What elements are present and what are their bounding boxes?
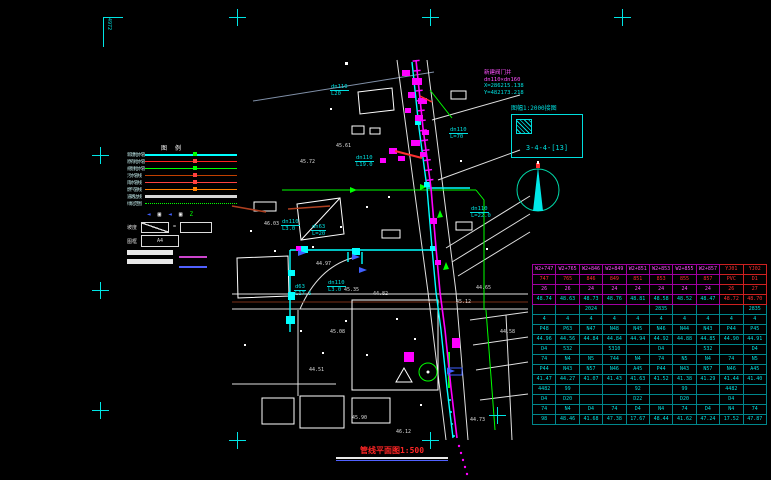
table-cell: 4	[649, 315, 672, 325]
legend-frame-row: 图框 A4	[127, 236, 245, 246]
table-cell	[649, 395, 672, 405]
scale-bar-1	[127, 250, 173, 255]
table-cell: 47.24	[696, 415, 719, 425]
table-cell: N57	[579, 365, 602, 375]
table-cell: 24	[603, 285, 626, 295]
legend-item-label: 规划给水管	[127, 166, 145, 172]
table-cell: D4	[696, 405, 719, 415]
elevation-label: 46.12	[396, 429, 411, 435]
table-cell: 92	[626, 385, 649, 395]
manhole-dot	[427, 371, 430, 374]
legend-item-line	[145, 189, 237, 190]
table-cell: 24	[649, 285, 672, 295]
crosshair-mark	[229, 432, 246, 449]
table-cell	[696, 385, 719, 395]
legend-item-label: 燃气管线	[127, 187, 145, 193]
table-cell: 532	[556, 345, 579, 355]
table-cell: 99	[673, 385, 696, 395]
legend-item: 原有给水管	[127, 158, 245, 165]
table-row: 44.9644.5644.8444.8444.9444.9244.8844.85…	[533, 335, 767, 345]
legend-item-line	[145, 175, 237, 176]
y-coordinate: Y=482173.218	[484, 90, 524, 97]
table-cell: N47	[579, 325, 602, 335]
table-row: 9848.4641.6847.3817.6748.4441.6247.2417.…	[533, 415, 767, 425]
table-cell	[533, 305, 556, 315]
x-coordinate: X=286215.138	[484, 83, 524, 90]
water-pipe-lines	[290, 62, 470, 438]
table-cell: 4	[626, 315, 649, 325]
table-cell: D4	[649, 345, 672, 355]
corner-label: 4972	[106, 18, 112, 30]
table-cell	[556, 305, 579, 315]
table-cell: 2835	[743, 305, 766, 315]
coordinate-note: 新建阀门井 dn110×dn160 X=286215.138 Y=482173.…	[484, 70, 524, 96]
legend-symbol: ◄	[168, 211, 172, 218]
table-cell	[579, 345, 602, 355]
table-cell: W2+851	[626, 265, 649, 275]
table-cell: 44.56	[556, 335, 579, 345]
table-cell: N4	[626, 355, 649, 365]
title-underline	[336, 457, 448, 459]
table-cell: N4	[696, 355, 719, 365]
table-cell: 4	[556, 315, 579, 325]
legend-items: 新建给水管原有给水管规划给水管污水管线雨水管线燃气管线道路边线绿化范围	[127, 151, 245, 207]
index-frame: 3-4-4-[13]	[511, 114, 583, 158]
pipe-data-table: W2+747W2+765W2+846W2+849W2+851W2+853W2+8…	[532, 264, 767, 425]
table-cell: N57	[696, 365, 719, 375]
table-cell: 74	[603, 405, 626, 415]
pipe-size-label: dn110×dn160	[484, 77, 524, 84]
table-cell	[696, 305, 719, 315]
legend-scale-row: 坡度 =	[127, 222, 245, 232]
table-cell: 853	[649, 275, 672, 285]
table-cell: D4	[533, 345, 556, 355]
table-cell: 41.62	[673, 415, 696, 425]
table-cell: P44	[649, 365, 672, 375]
table-cell	[579, 385, 602, 395]
table-cell: 48.70	[743, 295, 766, 305]
table-cell: 44.88	[673, 335, 696, 345]
elevation-label: 45.35	[344, 287, 359, 293]
table-cell: YJ02	[743, 265, 766, 275]
legend-item-marker	[193, 166, 197, 170]
pipe-label-length: L20	[330, 91, 349, 97]
table-cell: 26	[720, 285, 743, 295]
table-cell: 4	[743, 315, 766, 325]
corner-registration-mark: 4972	[100, 14, 126, 48]
elevation-label: 44.82	[373, 291, 388, 297]
table-cell: 26	[533, 285, 556, 295]
pipe-label: d63L17.5	[294, 284, 313, 297]
elevation-label: 45.90	[352, 415, 367, 421]
table-row: 48.7448.6348.7348.7648.8148.5848.5248.47…	[533, 295, 767, 305]
table-cell: 48.52	[673, 295, 696, 305]
legend-item: 燃气管线	[127, 186, 245, 193]
scale-label: 坡度	[127, 224, 137, 231]
table-cell: 26	[556, 285, 579, 295]
table-row: D4D20D22D20D4	[533, 395, 767, 405]
table-cell: 44.92	[649, 335, 672, 345]
title-underline-2	[336, 460, 448, 461]
table-cell: 17.67	[626, 415, 649, 425]
legend-item-label: 污水管线	[127, 173, 145, 179]
table-cell: 48.44	[649, 415, 672, 425]
pipe-label-length: L=70	[449, 134, 468, 140]
legend-item-line	[145, 195, 237, 198]
table-cell: N46	[649, 325, 672, 335]
table-cell: 24	[696, 285, 719, 295]
table-cell: 41.07	[579, 375, 602, 385]
pipe-label-size: dn63	[311, 224, 326, 231]
table-cell: W2+765	[556, 265, 579, 275]
cad-viewport: 4972 图例 新建给水管原有给水管规划给水管污水管线雨水管线燃气管线道路边线绿…	[0, 0, 771, 480]
table-cell: 74	[533, 355, 556, 365]
table-cell: D4	[720, 395, 743, 405]
table-cell: 4	[720, 315, 743, 325]
crosshair-mark	[92, 282, 109, 299]
table-cell: 44.90	[720, 335, 743, 345]
pipe-label-size: dn110	[449, 127, 468, 134]
table-cell	[673, 345, 696, 355]
table-cell: P63	[556, 325, 579, 335]
table-cell: 4482	[720, 385, 743, 395]
north-arrow-icon	[511, 161, 565, 217]
table-cell: N5	[673, 355, 696, 365]
table-cell: W2+857	[696, 265, 719, 275]
empty-symbol-box	[180, 222, 212, 233]
table-cell: 857	[696, 275, 719, 285]
legend-panel: 图例 新建给水管原有给水管规划给水管污水管线雨水管线燃气管线道路边线绿化范围 ◄…	[127, 143, 245, 264]
table-cell: D4	[743, 345, 766, 355]
note-title: 新建阀门井	[484, 70, 524, 77]
blue-ref-line	[179, 266, 207, 268]
table-cell	[603, 385, 626, 395]
table-cell: 48.63	[556, 295, 579, 305]
crosshair-mark	[92, 402, 109, 419]
slope-symbol-box	[141, 222, 169, 233]
crosshair-mark	[614, 9, 631, 26]
table-cell: N4	[720, 405, 743, 415]
table-cell: N4	[556, 355, 579, 365]
table-cell: N43	[673, 365, 696, 375]
table-cell: N4	[649, 405, 672, 415]
table-cell: 744	[603, 355, 626, 365]
table-cell: P48	[533, 325, 556, 335]
legend-item-label: 原有给水管	[127, 159, 145, 165]
table-cell: P45	[743, 325, 766, 335]
table-cell: 98	[533, 415, 556, 425]
legend-symbol: ▣	[179, 211, 183, 218]
table-cell: 41.47	[533, 375, 556, 385]
sheet-index-box: 图幅1:2000接图 3-4-4-[13]	[511, 103, 583, 158]
legend-symbol: Z	[190, 211, 194, 218]
table-cell: W2+846	[579, 265, 602, 275]
legend-item: 新建给水管	[127, 151, 245, 158]
table-cell: 851	[626, 275, 649, 285]
pipe-label-length: L19.0	[355, 162, 374, 168]
hatch-swatch	[516, 119, 532, 134]
table-row: 74N4N5744N474N5N474N5	[533, 355, 767, 365]
table-cell	[626, 345, 649, 355]
existing-lines	[232, 96, 432, 212]
table-row: 4444444444	[533, 315, 767, 325]
elevation-label: 46.03	[264, 221, 279, 227]
crosshair-mark	[422, 432, 439, 449]
table-cell: 47.38	[603, 415, 626, 425]
table-cell: 27	[743, 285, 766, 295]
table-row: 44829992994482	[533, 385, 767, 395]
legend-item: 污水管线	[127, 172, 245, 179]
table-cell: A45	[626, 365, 649, 375]
legend-item-label: 道路边线	[127, 194, 145, 200]
table-cell: 4	[603, 315, 626, 325]
pipe-label-length: L=22.0	[470, 213, 492, 219]
pipe-label-size: dn110	[281, 219, 300, 226]
table-cell	[743, 395, 766, 405]
table-cell: 44.84	[603, 335, 626, 345]
table-row: D45325310D4532D4	[533, 345, 767, 355]
table-cell: D22	[626, 395, 649, 405]
crosshair-mark	[489, 407, 506, 424]
table-cell	[626, 305, 649, 315]
legend-item: 道路边线	[127, 193, 245, 200]
pipe-label: dn110L=22.0	[470, 206, 492, 219]
table-cell: 24	[673, 285, 696, 295]
pipe-label-length: L3.0	[281, 226, 300, 232]
table-cell	[720, 305, 743, 315]
table-cell: 41.44	[720, 375, 743, 385]
scale-bar-2	[127, 259, 173, 264]
table-cell: 747	[533, 275, 556, 285]
table-cell: 2835	[649, 305, 672, 315]
elevation-label: 44.58	[500, 329, 515, 335]
table-cell: 4	[533, 315, 556, 325]
table-cell: 47.87	[743, 415, 766, 425]
pipe-label: dn110L3.0	[281, 219, 300, 232]
table-cell: 4482	[533, 385, 556, 395]
table-cell: D20	[673, 395, 696, 405]
elevation-label: 45.61	[336, 143, 351, 149]
legend-item-line	[145, 161, 237, 162]
table-cell: 5310	[603, 345, 626, 355]
legend-item-line	[145, 154, 237, 156]
table-cell: D20	[556, 395, 579, 405]
table-cell: N5	[579, 355, 602, 365]
pipe-label-length: L=20	[311, 231, 326, 237]
crosshair-mark	[229, 9, 246, 26]
table-cell: 41.29	[696, 375, 719, 385]
elevation-label: 45.72	[300, 159, 315, 165]
table-cell	[673, 305, 696, 315]
table-cell: 24	[626, 285, 649, 295]
table-cell: 48.74	[533, 295, 556, 305]
table-cell: 48.72	[720, 295, 743, 305]
table-cell: A45	[743, 365, 766, 375]
table-cell: N43	[696, 325, 719, 335]
table-cell: 44.91	[743, 335, 766, 345]
pipe-label: dn110L20	[330, 84, 349, 97]
table-cell: 765	[556, 275, 579, 285]
legend-item-label: 新建给水管	[127, 152, 145, 158]
table-cell: 4	[696, 315, 719, 325]
pipe-label-size: dn110	[470, 206, 489, 213]
table-cell: 44.94	[626, 335, 649, 345]
flow-arrows	[298, 250, 455, 374]
legend-item-marker	[193, 173, 197, 177]
table-cell: 74	[649, 355, 672, 365]
table-cell: 532	[696, 345, 719, 355]
table-cell: W2+853	[649, 265, 672, 275]
table-cell: 74	[743, 405, 766, 415]
legend-item-marker	[193, 159, 197, 163]
legend-symbol: ◄	[147, 211, 151, 218]
legend-item: 规划给水管	[127, 165, 245, 172]
table-cell: N4	[556, 405, 579, 415]
table-cell: N48	[603, 325, 626, 335]
table-cell: 849	[603, 275, 626, 285]
legend-item-marker	[193, 152, 197, 156]
pipe-label: dn63L=20	[311, 224, 326, 237]
legend-item-label: 雨水管线	[127, 180, 145, 186]
table-cell: 44.84	[579, 335, 602, 345]
pipe-label-size: dn110	[355, 155, 374, 162]
table-cell: 74	[720, 355, 743, 365]
table-cell: 41.38	[673, 375, 696, 385]
crosshair-mark	[92, 147, 109, 164]
table-cell: P44	[533, 365, 556, 375]
table-cell	[743, 385, 766, 395]
elevation-label: 44.65	[476, 285, 491, 291]
table-cell: 17.52	[720, 415, 743, 425]
elevation-label: 44.73	[470, 417, 485, 423]
table-cell: D4	[533, 395, 556, 405]
pipe-label-length: L17.5	[294, 291, 313, 297]
table-row: 74N4D474D4N474D4N474	[533, 405, 767, 415]
table-cell: 74	[673, 405, 696, 415]
table-cell: PVC	[720, 275, 743, 285]
table-cell: 4	[673, 315, 696, 325]
table-cell: 48.46	[556, 415, 579, 425]
pipe-label-size: dn110	[330, 84, 349, 91]
table-cell: W2+855	[673, 265, 696, 275]
pipe-label-size: d63	[294, 284, 306, 291]
table-cell: D4	[626, 405, 649, 415]
pipe-label: dn110L3.0	[327, 280, 346, 293]
table-cell: 44.96	[533, 335, 556, 345]
table-row: P48P63N47N48N45N46N44N43P44P45	[533, 325, 767, 335]
table-cell: D1	[743, 275, 766, 285]
legend-item-line	[145, 182, 237, 183]
table-cell: 4	[579, 315, 602, 325]
table-row: 26262424242424242627	[533, 285, 767, 295]
elevation-label: 45.08	[330, 329, 345, 335]
table-cell: 2024	[579, 305, 602, 315]
table-cell: W2+747	[533, 265, 556, 275]
table-cell	[603, 395, 626, 405]
table-cell: 48.76	[603, 295, 626, 305]
legend-item-marker	[193, 180, 197, 184]
table-cell	[696, 395, 719, 405]
table-cell: 48.73	[579, 295, 602, 305]
table-cell: N5	[743, 355, 766, 365]
legend-item-line	[145, 168, 237, 169]
table-cell: W2+849	[603, 265, 626, 275]
frame-label: 图框	[127, 238, 137, 245]
table-cell: N43	[556, 365, 579, 375]
table-cell: 41.43	[603, 375, 626, 385]
table-cell: N46	[720, 365, 743, 375]
table-cell: P44	[720, 325, 743, 335]
table-cell: 41.40	[743, 375, 766, 385]
legend-item-marker	[193, 187, 197, 191]
frame-box: A4	[141, 235, 179, 247]
table-cell: D4	[579, 405, 602, 415]
table-cell: N45	[626, 325, 649, 335]
table-cell: YJ01	[720, 265, 743, 275]
table-row: 202428352835	[533, 305, 767, 315]
elevation-label: 44.51	[309, 367, 324, 373]
table-cell: 41.52	[649, 375, 672, 385]
valve-blobs	[296, 70, 468, 475]
table-cell: N46	[603, 365, 626, 375]
table-cell: 41.63	[626, 375, 649, 385]
legend-item-line	[145, 203, 237, 204]
magenta-ref-line	[179, 256, 207, 258]
sheet-number: 3-4-4-[13]	[512, 144, 582, 152]
elevation-label: 45.12	[456, 299, 471, 305]
table-cell: 44.85	[696, 335, 719, 345]
table-cell: N44	[673, 325, 696, 335]
legend-symbol: ▣	[158, 211, 162, 218]
legend-symbol-row: ◄▣◄▣Z	[147, 210, 245, 218]
table-cell: 846	[579, 275, 602, 285]
table-cell: 41.68	[579, 415, 602, 425]
table-row: 747765846849851853855857PVCD1	[533, 275, 767, 285]
table-cell: 44.27	[556, 375, 579, 385]
table-cell: 855	[673, 275, 696, 285]
crosshair-mark	[422, 9, 439, 26]
elevation-label: 44.97	[316, 261, 331, 267]
table-row: 41.4744.2741.0741.4341.6341.5241.3841.29…	[533, 375, 767, 385]
table-cell	[579, 395, 602, 405]
table-cell: 48.58	[649, 295, 672, 305]
table-row: P44N43N57N46A45P44N43N57N46A45	[533, 365, 767, 375]
table-cell	[603, 305, 626, 315]
legend-bars	[127, 250, 245, 264]
legend-item-label: 绿化范围	[127, 201, 145, 207]
table-cell: 24	[579, 285, 602, 295]
table-cell	[720, 345, 743, 355]
table-cell	[649, 385, 672, 395]
legend-item: 绿化范围	[127, 200, 245, 207]
pipe-label-length: L3.0	[327, 287, 346, 293]
legend-item: 雨水管线	[127, 179, 245, 186]
table-cell: 48.47	[696, 295, 719, 305]
index-caption: 图幅1:2000接图	[511, 103, 583, 112]
table-cell: 99	[556, 385, 579, 395]
equals-sign: =	[173, 224, 176, 230]
pipe-label-size: dn110	[327, 280, 346, 287]
bracket-vertical	[103, 17, 104, 47]
table-cell: 48.81	[626, 295, 649, 305]
legend-header: 图例	[161, 143, 245, 151]
pipe-label: dn110L=70	[449, 127, 468, 140]
pipe-label: dn110L19.0	[355, 155, 374, 168]
table-row: W2+747W2+765W2+846W2+849W2+851W2+853W2+8…	[533, 265, 767, 275]
table-cell: 74	[533, 405, 556, 415]
north-arrow	[511, 161, 565, 221]
